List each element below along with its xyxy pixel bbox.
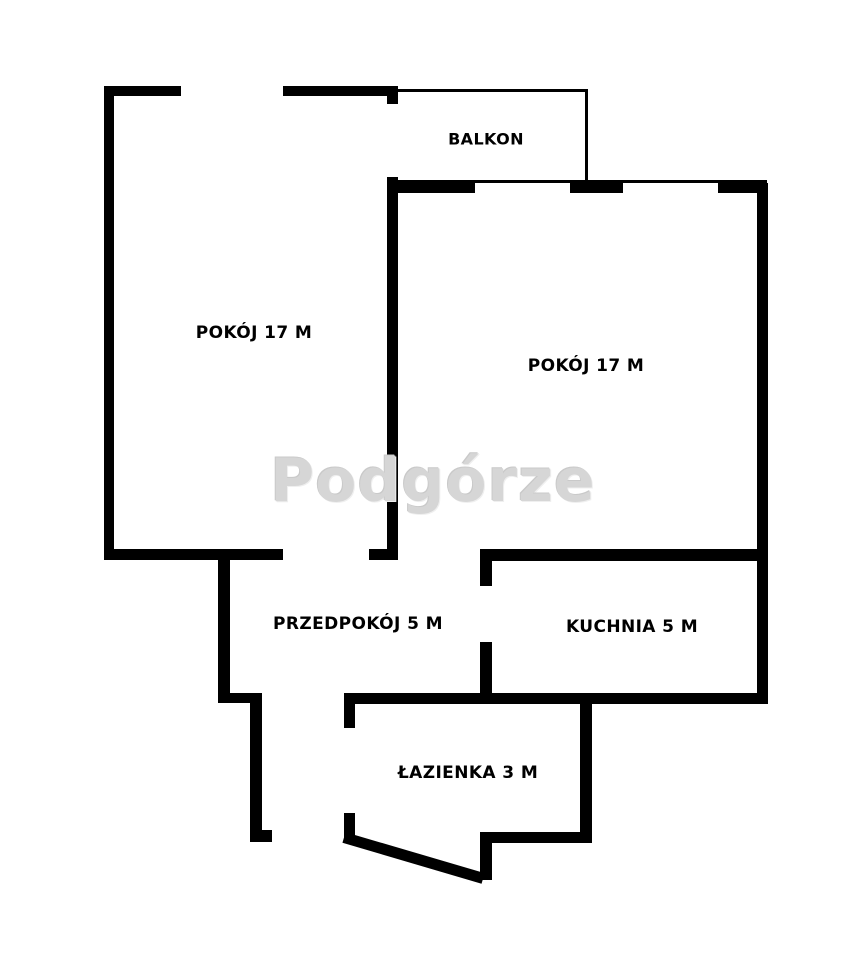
- wall-bottom-left-room-seg1: [104, 549, 283, 560]
- wall-kitchen-bottom: [344, 693, 768, 704]
- label-lazienka: ŁAZIENKA 3 M: [398, 763, 538, 783]
- balcony-outline-right: [585, 89, 588, 181]
- wall-kitchen-top: [480, 549, 768, 561]
- wall-top-left-room-seg1: [104, 86, 181, 96]
- wall-bath-left-upper: [344, 693, 355, 728]
- wall-entry-diagonal: [342, 832, 484, 883]
- wall-exterior-right: [757, 183, 768, 704]
- wall-entry-left-cap: [250, 830, 272, 842]
- floor-plan: BALKON POKÓJ 17 M POKÓJ 17 M PRZEDPOKÓJ …: [0, 0, 863, 960]
- wall-bath-right: [580, 693, 592, 843]
- wall-bottom-left-room-seg2: [369, 549, 398, 560]
- wall-top-left-room-seg2: [283, 86, 398, 96]
- label-kuchnia: KUCHNIA 5 M: [566, 617, 698, 637]
- watermark-text: Podgórze: [270, 446, 596, 516]
- wall-exterior-left: [104, 86, 114, 559]
- wall-kitchen-left-stub: [480, 549, 492, 586]
- label-pokoj-left: POKÓJ 17 M: [196, 323, 313, 343]
- label-pokoj-right: POKÓJ 17 M: [528, 356, 645, 376]
- wall-hall-left: [218, 549, 230, 703]
- wall-entry-left: [250, 693, 262, 842]
- label-przedpokoj: PRZEDPOKÓJ 5 M: [273, 614, 443, 634]
- wall-bath-bottom: [480, 832, 592, 843]
- label-balkon: BALKON: [448, 130, 524, 149]
- wall-top-right-room-seg2: [570, 183, 623, 193]
- wall-top-right-room-seg1: [387, 183, 475, 193]
- balcony-outline-top: [397, 89, 587, 92]
